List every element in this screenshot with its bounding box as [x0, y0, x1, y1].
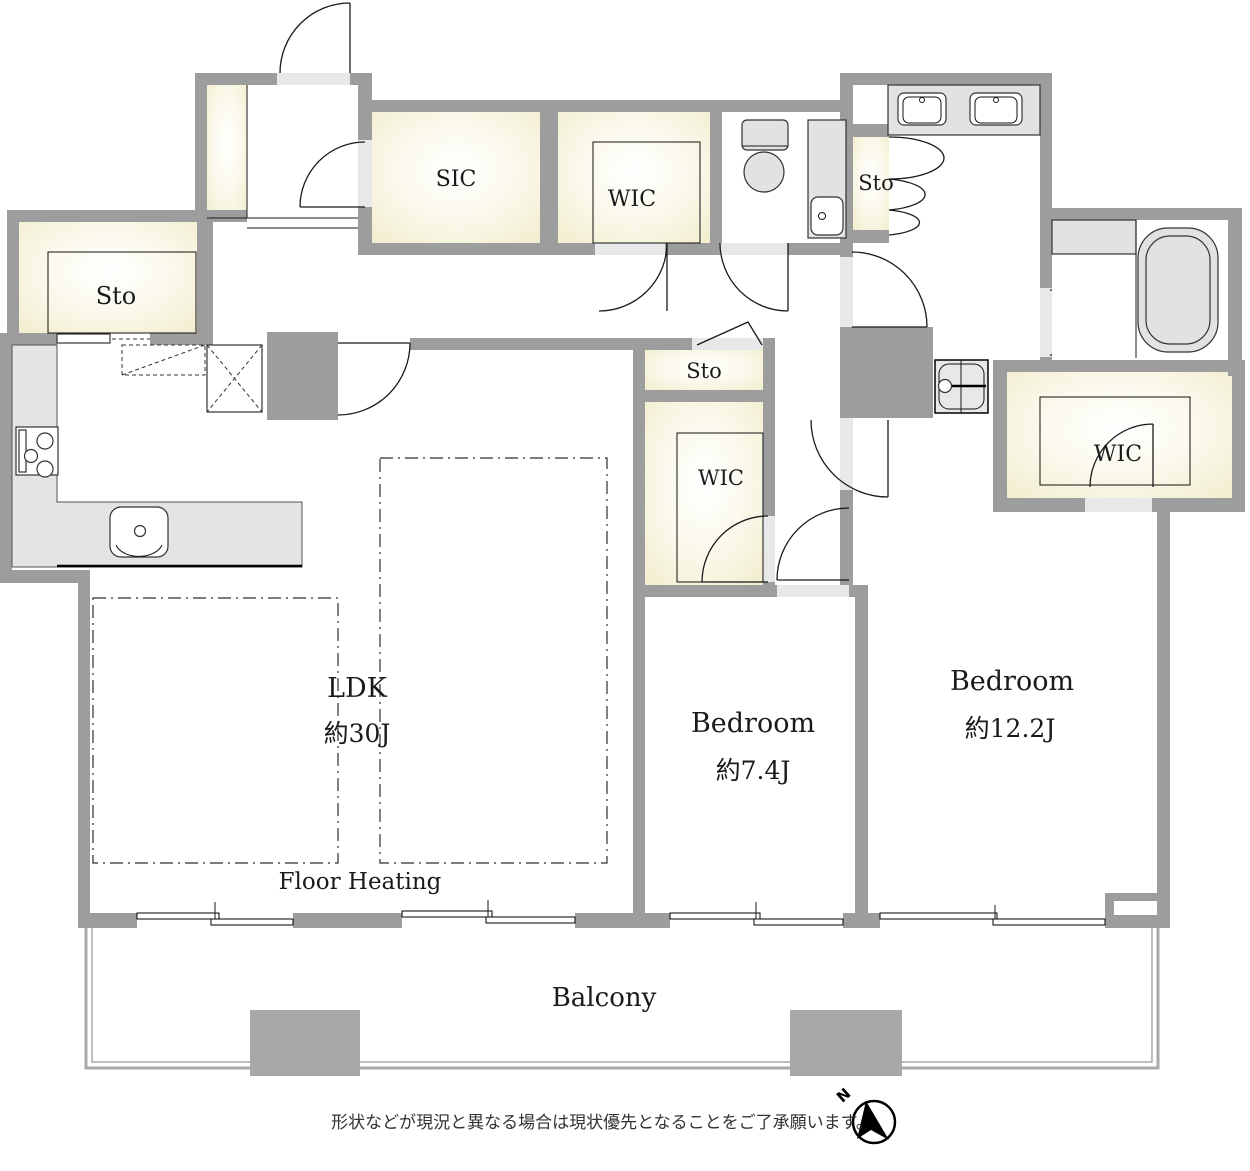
wall [1040, 208, 1240, 220]
wall [78, 913, 137, 928]
wall [1228, 208, 1242, 376]
upper-cabinet-diagonal [122, 345, 205, 375]
opening-wic-mid [763, 516, 775, 582]
washer-pan [935, 360, 988, 413]
window-ldk-right [402, 900, 575, 923]
opening-wic-right [1085, 498, 1152, 512]
wall [410, 338, 692, 350]
label-ldk-size: 約30J [324, 719, 391, 748]
wall [358, 243, 595, 255]
bathroom [1052, 220, 1228, 360]
wall [7, 210, 247, 222]
wall [540, 112, 558, 243]
label-wic-top: WIC [608, 187, 656, 212]
label-sto-mid: Sto [686, 359, 721, 383]
room-wic-right [1007, 372, 1232, 498]
balcony-pillar [250, 1010, 360, 1076]
wall [710, 112, 722, 243]
bedroom-small-door [777, 508, 849, 580]
wall [840, 327, 933, 418]
window-ldk-left [137, 902, 293, 925]
opening-bathroom [1040, 288, 1052, 357]
disclaimer-text: 形状などが現況と異なる場合は現状優先となることをご了承願います。 [331, 1113, 873, 1133]
wall [1040, 85, 1052, 288]
wall [7, 210, 19, 345]
wall [855, 597, 868, 928]
room-wic-mid [645, 402, 763, 585]
label-balcony: Balcony [552, 983, 657, 1013]
wall [358, 100, 840, 112]
kitchen [12, 345, 302, 567]
label-bedroom-small: Bedroom [691, 708, 815, 739]
wall [843, 913, 880, 928]
sto-left-threshold [57, 334, 110, 343]
label-sic: SIC [436, 167, 477, 192]
entry-closet [207, 85, 247, 218]
window-bedroom-large [880, 905, 1105, 925]
wall [853, 230, 889, 243]
label-floor-heating: Floor Heating [279, 869, 442, 895]
wall [645, 585, 777, 597]
entrance-door [280, 3, 350, 73]
wall [840, 73, 1052, 85]
wall [0, 570, 90, 583]
room-wic-top [558, 112, 710, 243]
wall [665, 243, 720, 255]
wall [150, 333, 213, 345]
wall [575, 913, 670, 928]
wall [195, 73, 277, 85]
floor-heating-zone [93, 598, 338, 863]
wall [1232, 368, 1245, 512]
opening-toilet [720, 243, 788, 255]
wall [849, 585, 868, 597]
washroom-door [852, 252, 927, 327]
wall [197, 222, 213, 333]
wall [1157, 498, 1170, 928]
opening-washroom [840, 257, 853, 327]
toilet [742, 120, 846, 238]
wall [195, 73, 207, 222]
wall [788, 243, 840, 255]
wall [293, 913, 402, 928]
opening-bedroom-large [840, 418, 853, 490]
floor-heating-zone [380, 458, 607, 863]
wall-notch-hole [1114, 901, 1157, 915]
wall [645, 390, 775, 402]
stove [16, 427, 58, 477]
vanity-basin [970, 93, 1022, 125]
label-sto-left: Sto [96, 282, 137, 310]
toilet-bowl [744, 152, 784, 192]
bath-counter [1052, 220, 1136, 254]
label-bedroom-large-size: 約12.2J [965, 714, 1056, 743]
toilet-hand-basin [811, 197, 843, 235]
opening-sto-mid [692, 338, 763, 350]
window-bedroom-small [670, 902, 843, 925]
sto-wash-folding-doors [889, 137, 944, 235]
wall [763, 338, 775, 516]
opening-wic-top [595, 243, 665, 255]
wall [267, 332, 338, 420]
wall [853, 124, 889, 137]
room-sto-left [19, 222, 197, 333]
floor-plan-drawing: SIC WIC Sto Sto Sto WIC WIC LDK 約30J Bed… [0, 0, 1250, 1171]
label-ldk: LDK [327, 673, 388, 704]
wall [633, 338, 645, 928]
kitchen-door [338, 343, 410, 415]
sic-door [300, 142, 365, 207]
wall [993, 360, 1007, 498]
vanity-basin [898, 93, 946, 125]
label-sto-wash: Sto [858, 171, 893, 195]
balcony-pillar [790, 1010, 902, 1076]
wall [993, 360, 1245, 372]
compass-north-label: N [833, 1084, 854, 1106]
opening-bedroom-small [777, 585, 849, 597]
kitchen-sink [110, 507, 168, 557]
wall [78, 583, 90, 928]
room-labels: SIC WIC Sto Sto Sto WIC WIC LDK 約30J Bed… [96, 167, 1142, 1013]
wall [0, 333, 12, 583]
label-wic-mid: WIC [698, 466, 744, 490]
refrigerator-space [207, 345, 262, 412]
label-wic-right: WIC [1094, 442, 1142, 467]
wall [7, 333, 57, 345]
floor-plan: SIC WIC Sto Sto Sto WIC WIC LDK 約30J Bed… [0, 0, 1250, 1171]
opening-sic [358, 140, 372, 207]
wall [840, 490, 853, 597]
label-bedroom-large: Bedroom [950, 666, 1074, 697]
opening-entrance [277, 73, 350, 85]
label-bedroom-small-size: 約7.4J [716, 756, 791, 785]
wall [993, 498, 1085, 512]
